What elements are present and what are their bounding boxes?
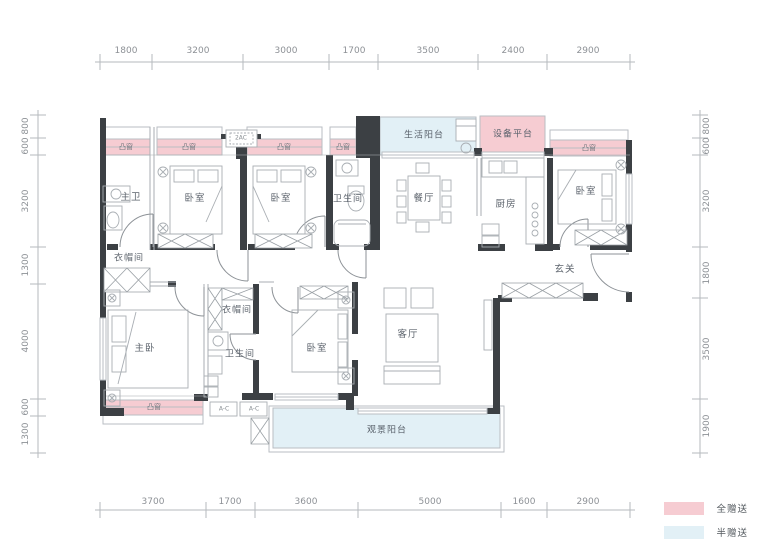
bay-window-label-4: 凸窗 [336, 142, 350, 152]
bay-window-label-2: 凸窗 [182, 142, 196, 152]
room-label-bedroom-d: 卧室 [306, 340, 327, 354]
dim-left-2: 600 [21, 137, 31, 154]
room-label-bedroom-c: 卧室 [575, 183, 596, 197]
door-bedroom-d [272, 287, 298, 313]
dim-left-1: 800 [21, 117, 31, 134]
dim-top-2: 3200 [187, 46, 210, 56]
dim-bottom-2: 1700 [219, 497, 242, 507]
bath-b-fixtures [204, 332, 228, 397]
dim-top-5: 3500 [417, 46, 440, 56]
door-bath-top [338, 250, 366, 278]
room-label-master-bath: 主卫 [120, 189, 141, 203]
dim-top-3: 3000 [275, 46, 298, 56]
dim-left-7: 1300 [21, 423, 31, 446]
room-label-equipment-platform: 设备平台 [493, 127, 533, 140]
room-label-view-balcony: 观景阳台 [367, 423, 407, 436]
legend-label-full-gift: 全赠送 [716, 501, 748, 515]
bay-window-label-6: 凸窗 [147, 402, 161, 412]
dim-right-4: 1800 [702, 262, 712, 285]
room-label-kitchen: 厨房 [495, 196, 516, 210]
dim-left-5: 4000 [21, 330, 31, 353]
dim-left-3: 3200 [21, 190, 31, 213]
door-entry [591, 254, 629, 292]
room-label-bath-b: 卫生间 [225, 347, 255, 360]
bay-window-label-3: 凸窗 [277, 142, 291, 152]
legend-label-half-gift: 半赠送 [716, 525, 748, 539]
bed-bedroom-d [292, 292, 354, 384]
bay-window-label-1: 凸窗 [119, 142, 133, 152]
room-label-bedroom-b: 卧室 [270, 190, 291, 204]
bay-window-label-5: 凸窗 [582, 143, 596, 153]
legend: 全赠送 半赠送 [664, 491, 748, 539]
dim-right-6: 1900 [702, 415, 712, 438]
dim-right-2: 600 [702, 137, 712, 154]
dim-bottom-3: 3600 [295, 497, 318, 507]
room-label-entry: 玄关 [554, 261, 575, 275]
room-label-dining: 餐厅 [413, 190, 434, 204]
dim-right-3: 3200 [702, 190, 712, 213]
room-label-bedroom-a: 卧室 [184, 190, 205, 204]
dim-bottom-1: 3700 [142, 497, 165, 507]
ac-label-1: A-C [219, 406, 229, 413]
room-label-life-balcony: 生活阳台 [404, 128, 444, 141]
dim-top-4: 1700 [343, 46, 366, 56]
legend-swatch-full-gift [664, 502, 704, 515]
dim-bottom-5: 1600 [513, 497, 536, 507]
room-label-living: 客厅 [397, 326, 418, 340]
floor-plan-page: 1800 3200 3000 1700 3500 2400 2900 3700 … [0, 0, 766, 553]
room-label-master-bedroom: 主卧 [134, 340, 155, 354]
dim-top-6: 2400 [502, 46, 525, 56]
dim-right-1: 800 [702, 117, 712, 134]
ac-label-2: A-C [249, 406, 259, 413]
room-label-cloakroom-b: 衣帽间 [222, 303, 252, 316]
dim-bottom-6: 2900 [577, 497, 600, 507]
legend-row-half-gift: 半赠送 [664, 525, 748, 539]
ac-label-top: 2AC [235, 135, 247, 142]
room-label-cloakroom-a: 衣帽间 [114, 251, 144, 264]
door-master-bedroom [175, 287, 204, 316]
dim-left-4: 1300 [21, 254, 31, 277]
legend-swatch-half-gift [664, 526, 704, 539]
dim-bottom-4: 5000 [419, 497, 442, 507]
bed-bedroom-c [558, 160, 626, 234]
door-master-bath [120, 214, 153, 247]
dim-left-6: 600 [21, 398, 31, 415]
dim-top-1: 1800 [115, 46, 138, 56]
floor-plan-drawing [0, 0, 766, 553]
dim-right-5: 3500 [702, 338, 712, 361]
legend-row-full-gift: 全赠送 [664, 501, 748, 515]
dim-top-7: 2900 [577, 46, 600, 56]
room-label-bath-top: 卫生间 [333, 192, 363, 205]
door-bedroom-a [217, 250, 248, 281]
